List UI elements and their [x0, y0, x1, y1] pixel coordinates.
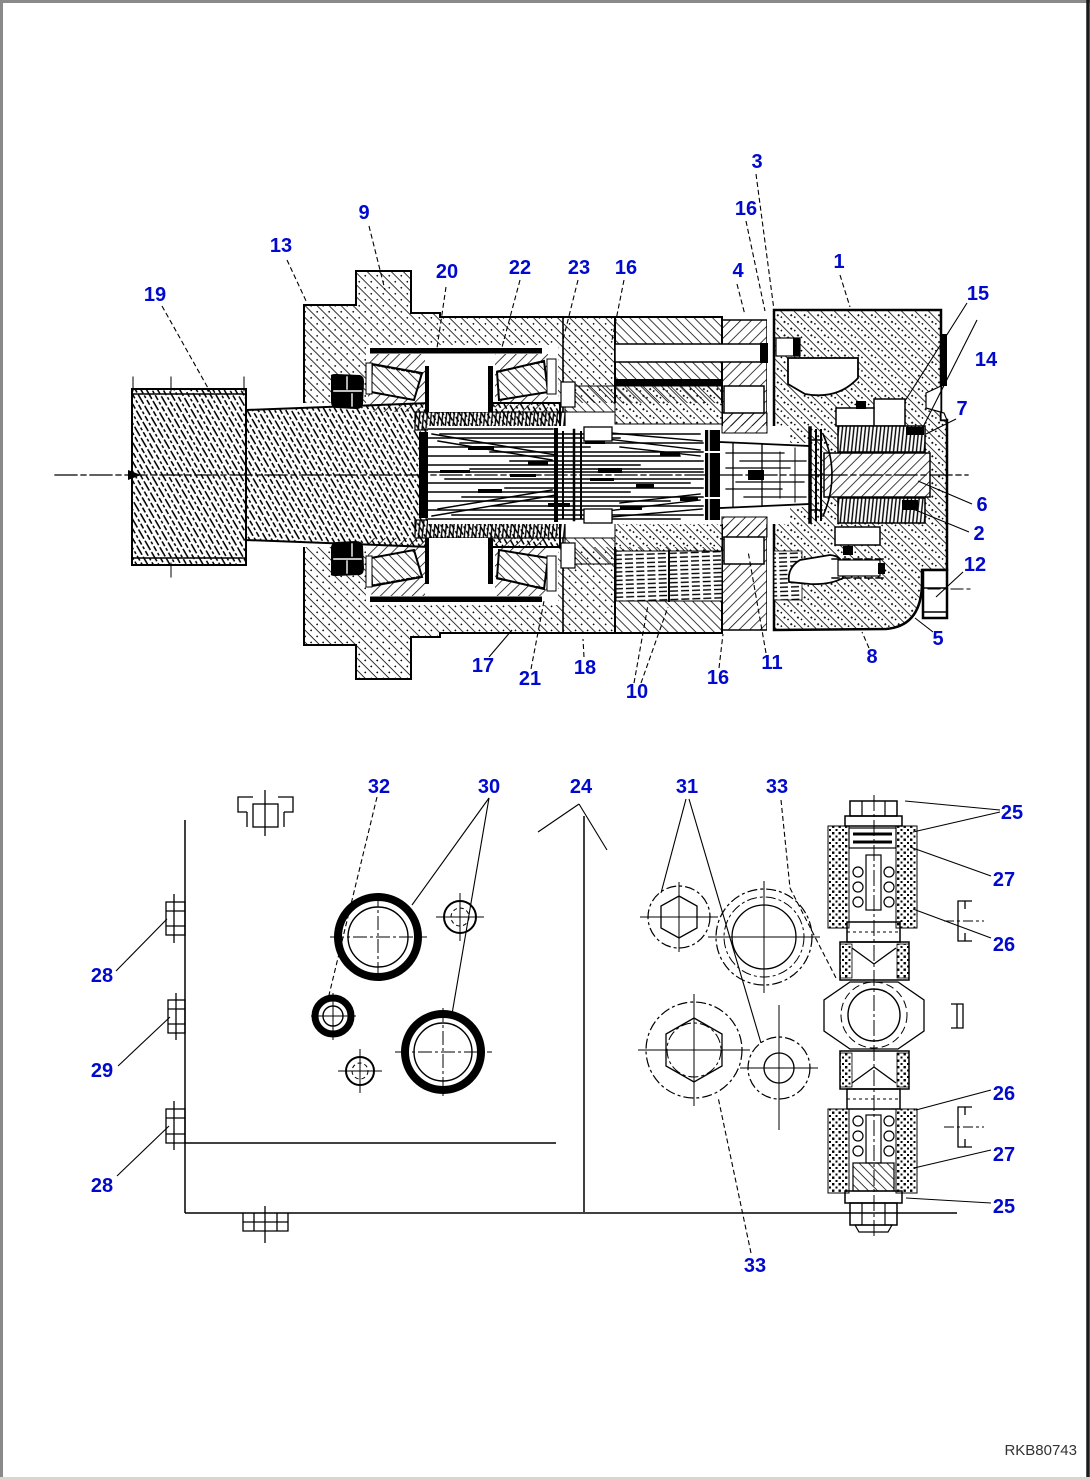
- svg-text:16: 16: [707, 667, 729, 689]
- svg-text:5: 5: [932, 628, 943, 650]
- svg-text:2: 2: [973, 523, 984, 545]
- svg-text:16: 16: [615, 257, 637, 279]
- svg-text:24: 24: [570, 776, 593, 798]
- svg-text:20: 20: [436, 261, 458, 283]
- svg-text:26: 26: [993, 934, 1015, 956]
- svg-text:15: 15: [967, 283, 989, 305]
- svg-text:25: 25: [993, 1196, 1015, 1218]
- svg-text:31: 31: [676, 776, 698, 798]
- svg-text:10: 10: [626, 681, 648, 703]
- svg-text:7: 7: [956, 398, 967, 420]
- svg-text:21: 21: [519, 668, 541, 690]
- svg-text:28: 28: [91, 1175, 113, 1197]
- svg-text:18: 18: [574, 657, 596, 679]
- svg-text:16: 16: [735, 198, 757, 220]
- svg-text:26: 26: [993, 1083, 1015, 1105]
- svg-text:11: 11: [761, 652, 782, 674]
- svg-text:8: 8: [866, 646, 877, 668]
- svg-text:1: 1: [833, 251, 844, 273]
- svg-text:9: 9: [358, 202, 369, 224]
- svg-text:19: 19: [144, 284, 166, 306]
- svg-text:6: 6: [976, 494, 987, 516]
- svg-text:4: 4: [732, 260, 744, 282]
- svg-text:3: 3: [751, 151, 762, 173]
- svg-text:30: 30: [478, 776, 500, 798]
- svg-text:29: 29: [91, 1060, 113, 1082]
- svg-text:RKB80743: RKB80743: [1004, 1442, 1077, 1459]
- svg-text:14: 14: [975, 349, 998, 371]
- svg-text:33: 33: [766, 776, 788, 798]
- svg-text:12: 12: [964, 554, 986, 576]
- svg-text:23: 23: [568, 257, 590, 279]
- svg-text:32: 32: [368, 776, 390, 798]
- svg-text:33: 33: [744, 1255, 766, 1277]
- svg-text:27: 27: [993, 1144, 1015, 1166]
- svg-text:22: 22: [509, 257, 531, 279]
- svg-text:27: 27: [993, 869, 1015, 891]
- svg-text:13: 13: [270, 235, 292, 257]
- svg-text:17: 17: [472, 655, 494, 677]
- svg-text:25: 25: [1001, 802, 1023, 824]
- svg-text:28: 28: [91, 965, 113, 987]
